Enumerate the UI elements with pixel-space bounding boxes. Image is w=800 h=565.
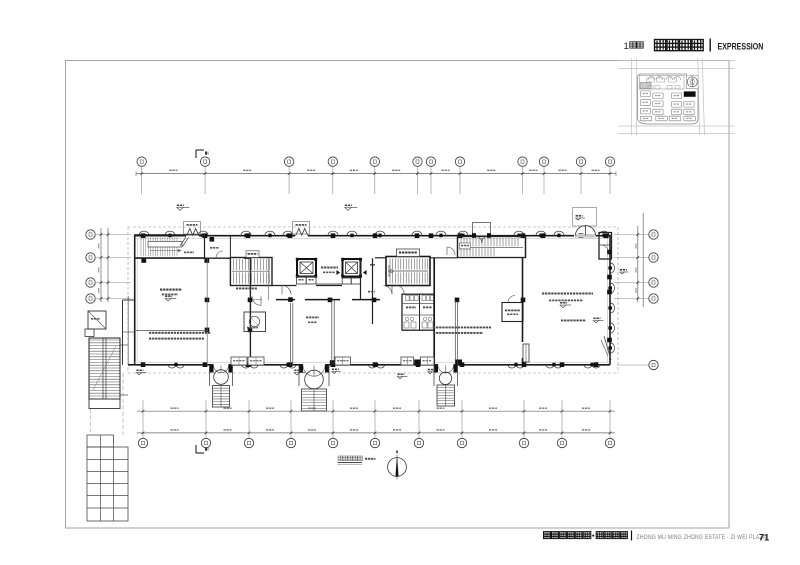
svg-text:ZHONG MU MING ZHONG ESTATE - Z: ZHONG MU MING ZHONG ESTATE - ZI WEI PLAZ… xyxy=(637,535,767,542)
svg-text:EXPRESSION: EXPRESSION xyxy=(718,40,764,51)
svg-text:1: 1 xyxy=(624,41,629,52)
svg-text:71: 71 xyxy=(759,533,769,543)
